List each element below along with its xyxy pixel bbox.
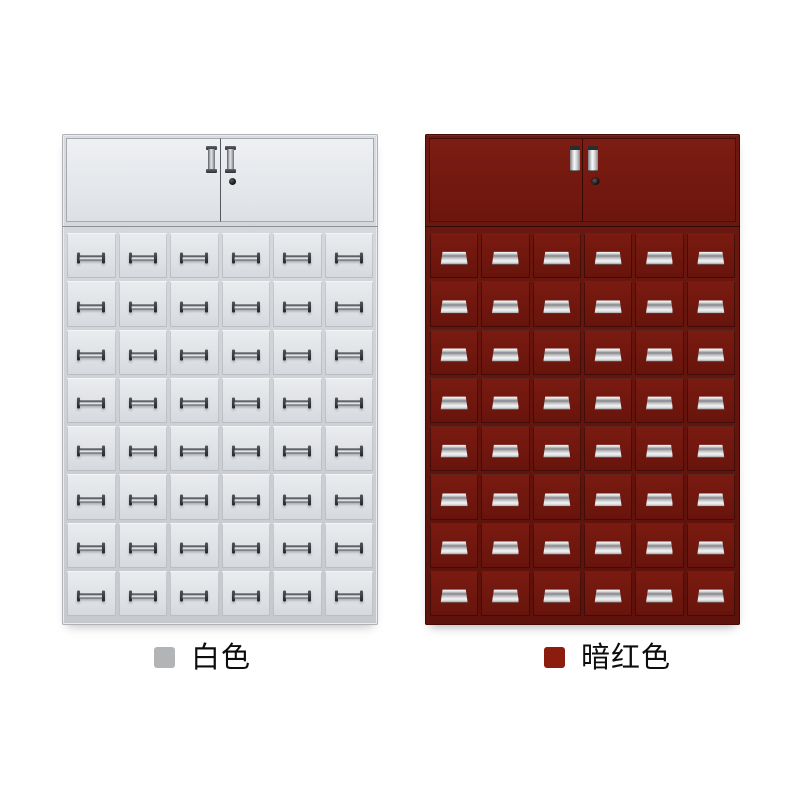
color-option-dark-red[interactable]: 暗红色 bbox=[544, 642, 671, 673]
color-label-white: 白色 bbox=[191, 642, 251, 673]
drawer-handle-icon bbox=[697, 493, 724, 506]
drawer bbox=[533, 233, 581, 278]
drawer-handle-icon bbox=[595, 348, 622, 361]
drawer bbox=[635, 426, 683, 471]
drawer bbox=[273, 523, 322, 568]
cabinet-dark-red-door-right bbox=[582, 138, 736, 222]
drawer bbox=[67, 426, 116, 471]
drawer bbox=[119, 474, 168, 519]
drawer-handle-icon bbox=[77, 446, 105, 457]
drawer bbox=[67, 281, 116, 326]
color-label-dark-red: 暗红色 bbox=[581, 642, 671, 673]
drawer bbox=[273, 474, 322, 519]
drawer bbox=[273, 571, 322, 616]
drawer bbox=[67, 571, 116, 616]
drawer-handle-icon bbox=[283, 253, 311, 264]
drawer bbox=[325, 571, 374, 616]
drawer-handle-icon bbox=[543, 348, 570, 361]
drawer-handle-icon bbox=[335, 446, 363, 457]
drawer bbox=[584, 571, 632, 616]
drawer-handle-icon bbox=[492, 590, 519, 603]
drawer-handle-icon bbox=[77, 591, 105, 602]
drawer-handle-icon bbox=[646, 445, 673, 458]
drawer bbox=[325, 330, 374, 375]
drawer bbox=[170, 330, 219, 375]
color-swatch-dark-red bbox=[544, 647, 565, 668]
drawer-handle-icon bbox=[232, 446, 260, 457]
drawer bbox=[584, 233, 632, 278]
drawer-handle-icon bbox=[595, 541, 622, 554]
drawer bbox=[430, 233, 478, 278]
drawer-handle-icon bbox=[129, 301, 157, 312]
drawer-handle-icon bbox=[335, 494, 363, 505]
drawer bbox=[67, 378, 116, 423]
drawer bbox=[222, 571, 271, 616]
cabinet-white bbox=[62, 134, 378, 625]
drawer bbox=[584, 378, 632, 423]
drawer bbox=[481, 281, 529, 326]
drawer-handle-icon bbox=[646, 252, 673, 265]
drawer-handle-icon bbox=[697, 397, 724, 410]
drawer-handle-icon bbox=[232, 398, 260, 409]
drawer-handle-icon bbox=[283, 591, 311, 602]
drawer-handle-icon bbox=[543, 445, 570, 458]
drawer bbox=[635, 281, 683, 326]
drawer-handle-icon bbox=[492, 445, 519, 458]
drawer-handle-icon bbox=[646, 348, 673, 361]
drawer-handle-icon bbox=[180, 253, 208, 264]
drawer bbox=[687, 426, 735, 471]
drawer bbox=[584, 523, 632, 568]
drawer bbox=[170, 571, 219, 616]
cabinet-white-doors bbox=[62, 134, 378, 227]
drawer-handle-icon bbox=[335, 301, 363, 312]
drawer bbox=[687, 330, 735, 375]
drawer-handle-icon bbox=[697, 590, 724, 603]
drawer bbox=[170, 523, 219, 568]
drawer-handle-icon bbox=[129, 253, 157, 264]
drawer bbox=[67, 523, 116, 568]
drawer bbox=[273, 233, 322, 278]
drawer-handle-icon bbox=[441, 493, 468, 506]
drawer-handle-icon bbox=[595, 252, 622, 265]
drawer bbox=[687, 233, 735, 278]
cabinet-white-door-right bbox=[220, 138, 375, 222]
drawer bbox=[119, 233, 168, 278]
drawer-handle-icon bbox=[441, 252, 468, 265]
drawer-handle-icon bbox=[646, 541, 673, 554]
drawer bbox=[430, 281, 478, 326]
drawer-handle-icon bbox=[129, 398, 157, 409]
drawer bbox=[687, 281, 735, 326]
drawer-handle-icon bbox=[129, 542, 157, 553]
drawer bbox=[273, 281, 322, 326]
drawer bbox=[170, 281, 219, 326]
color-option-white[interactable]: 白色 bbox=[154, 642, 251, 673]
drawer bbox=[533, 281, 581, 326]
drawer bbox=[533, 523, 581, 568]
drawer-handle-icon bbox=[441, 348, 468, 361]
drawer bbox=[584, 281, 632, 326]
drawer-handle-icon bbox=[543, 397, 570, 410]
drawer bbox=[222, 426, 271, 471]
drawer-handle-icon bbox=[697, 252, 724, 265]
drawer-handle-icon bbox=[180, 398, 208, 409]
drawer bbox=[481, 330, 529, 375]
drawer-handle-icon bbox=[441, 541, 468, 554]
drawer-handle-icon bbox=[543, 541, 570, 554]
cabinet-dark-red-drawer-grid bbox=[425, 227, 740, 625]
drawer-handle-icon bbox=[180, 591, 208, 602]
drawer bbox=[635, 571, 683, 616]
drawer bbox=[635, 474, 683, 519]
drawer-handle-icon bbox=[543, 252, 570, 265]
drawer bbox=[635, 523, 683, 568]
drawer bbox=[687, 571, 735, 616]
keyhole-lock-icon bbox=[229, 178, 236, 185]
drawer bbox=[119, 426, 168, 471]
drawer bbox=[170, 426, 219, 471]
drawer-handle-icon bbox=[646, 397, 673, 410]
drawer bbox=[533, 330, 581, 375]
drawer bbox=[222, 474, 271, 519]
drawer bbox=[430, 571, 478, 616]
door-handle-icon bbox=[588, 146, 598, 171]
drawer bbox=[430, 378, 478, 423]
drawer-handle-icon bbox=[441, 300, 468, 313]
drawer-handle-icon bbox=[283, 542, 311, 553]
drawer bbox=[584, 474, 632, 519]
drawer-handle-icon bbox=[232, 591, 260, 602]
drawer-handle-icon bbox=[595, 397, 622, 410]
drawer bbox=[430, 330, 478, 375]
cabinet-dark-red-door-left bbox=[429, 138, 582, 222]
drawer-handle-icon bbox=[129, 494, 157, 505]
drawer-handle-icon bbox=[492, 397, 519, 410]
drawer-handle-icon bbox=[77, 349, 105, 360]
drawer bbox=[325, 281, 374, 326]
drawer bbox=[119, 378, 168, 423]
drawer-handle-icon bbox=[129, 446, 157, 457]
door-handle-icon bbox=[225, 146, 236, 173]
drawer-handle-icon bbox=[697, 300, 724, 313]
drawer bbox=[481, 523, 529, 568]
drawer bbox=[222, 233, 271, 278]
drawer-handle-icon bbox=[129, 349, 157, 360]
drawer bbox=[687, 523, 735, 568]
drawer bbox=[273, 426, 322, 471]
drawer-handle-icon bbox=[543, 590, 570, 603]
drawer-handle-icon bbox=[543, 300, 570, 313]
drawer-handle-icon bbox=[335, 591, 363, 602]
drawer bbox=[584, 426, 632, 471]
drawer-handle-icon bbox=[595, 300, 622, 313]
drawer bbox=[119, 281, 168, 326]
drawer-handle-icon bbox=[441, 397, 468, 410]
drawer-handle-icon bbox=[129, 591, 157, 602]
drawer-handle-icon bbox=[283, 398, 311, 409]
drawer bbox=[430, 523, 478, 568]
drawer-handle-icon bbox=[492, 541, 519, 554]
drawer bbox=[67, 233, 116, 278]
drawer-handle-icon bbox=[232, 253, 260, 264]
drawer bbox=[533, 378, 581, 423]
drawer-handle-icon bbox=[441, 590, 468, 603]
drawer bbox=[325, 426, 374, 471]
drawer-handle-icon bbox=[77, 494, 105, 505]
drawer-handle-icon bbox=[492, 348, 519, 361]
drawer-handle-icon bbox=[180, 494, 208, 505]
drawer-handle-icon bbox=[595, 445, 622, 458]
drawer-handle-icon bbox=[77, 253, 105, 264]
drawer bbox=[687, 474, 735, 519]
drawer bbox=[273, 330, 322, 375]
drawer bbox=[325, 378, 374, 423]
drawer-handle-icon bbox=[595, 590, 622, 603]
drawer-handle-icon bbox=[77, 542, 105, 553]
drawer bbox=[481, 426, 529, 471]
drawer bbox=[222, 378, 271, 423]
drawer bbox=[119, 330, 168, 375]
drawer bbox=[533, 474, 581, 519]
drawer-handle-icon bbox=[335, 349, 363, 360]
drawer-handle-icon bbox=[697, 445, 724, 458]
drawer-handle-icon bbox=[283, 349, 311, 360]
drawer bbox=[119, 571, 168, 616]
color-swatch-white bbox=[154, 647, 175, 668]
drawer bbox=[430, 426, 478, 471]
drawer bbox=[481, 233, 529, 278]
drawer bbox=[273, 378, 322, 423]
drawer-handle-icon bbox=[77, 301, 105, 312]
door-handle-icon bbox=[570, 146, 580, 171]
drawer bbox=[119, 523, 168, 568]
drawer-handle-icon bbox=[646, 493, 673, 506]
drawer-handle-icon bbox=[283, 446, 311, 457]
drawer bbox=[533, 426, 581, 471]
drawer bbox=[170, 378, 219, 423]
drawer-handle-icon bbox=[180, 446, 208, 457]
drawer bbox=[325, 474, 374, 519]
drawer bbox=[635, 378, 683, 423]
drawer-handle-icon bbox=[232, 494, 260, 505]
drawer-handle-icon bbox=[492, 493, 519, 506]
drawer bbox=[430, 474, 478, 519]
drawer bbox=[222, 330, 271, 375]
drawer-handle-icon bbox=[180, 349, 208, 360]
drawer bbox=[635, 330, 683, 375]
drawer-handle-icon bbox=[492, 252, 519, 265]
product-image: 白色 暗红色 bbox=[0, 0, 800, 800]
drawer bbox=[325, 523, 374, 568]
drawer-handle-icon bbox=[232, 542, 260, 553]
drawer bbox=[170, 474, 219, 519]
drawer bbox=[222, 523, 271, 568]
drawer bbox=[325, 233, 374, 278]
drawer-handle-icon bbox=[232, 349, 260, 360]
drawer-handle-icon bbox=[283, 301, 311, 312]
cabinet-dark-red-doors bbox=[425, 134, 740, 227]
drawer bbox=[67, 474, 116, 519]
drawer-handle-icon bbox=[543, 493, 570, 506]
drawer bbox=[481, 378, 529, 423]
drawer bbox=[533, 571, 581, 616]
drawer-handle-icon bbox=[180, 542, 208, 553]
drawer-handle-icon bbox=[335, 542, 363, 553]
drawer bbox=[687, 378, 735, 423]
drawer-handle-icon bbox=[697, 348, 724, 361]
drawer-handle-icon bbox=[335, 253, 363, 264]
drawer-handle-icon bbox=[697, 541, 724, 554]
drawer-handle-icon bbox=[180, 301, 208, 312]
drawer-handle-icon bbox=[232, 301, 260, 312]
drawer-handle-icon bbox=[646, 590, 673, 603]
cabinet-white-door-left bbox=[66, 138, 220, 222]
drawer bbox=[170, 233, 219, 278]
drawer bbox=[635, 233, 683, 278]
drawer-handle-icon bbox=[595, 493, 622, 506]
drawer bbox=[481, 474, 529, 519]
cabinet-white-drawer-grid bbox=[62, 227, 378, 625]
drawer-handle-icon bbox=[283, 494, 311, 505]
door-handle-icon bbox=[206, 146, 217, 173]
keyhole-lock-icon bbox=[592, 178, 599, 185]
drawer bbox=[584, 330, 632, 375]
cabinet-dark-red bbox=[425, 134, 740, 625]
drawer-handle-icon bbox=[441, 445, 468, 458]
drawer-handle-icon bbox=[646, 300, 673, 313]
drawer-handle-icon bbox=[492, 300, 519, 313]
drawer-handle-icon bbox=[335, 398, 363, 409]
drawer-handle-icon bbox=[77, 398, 105, 409]
drawer bbox=[222, 281, 271, 326]
drawer bbox=[67, 330, 116, 375]
drawer bbox=[481, 571, 529, 616]
